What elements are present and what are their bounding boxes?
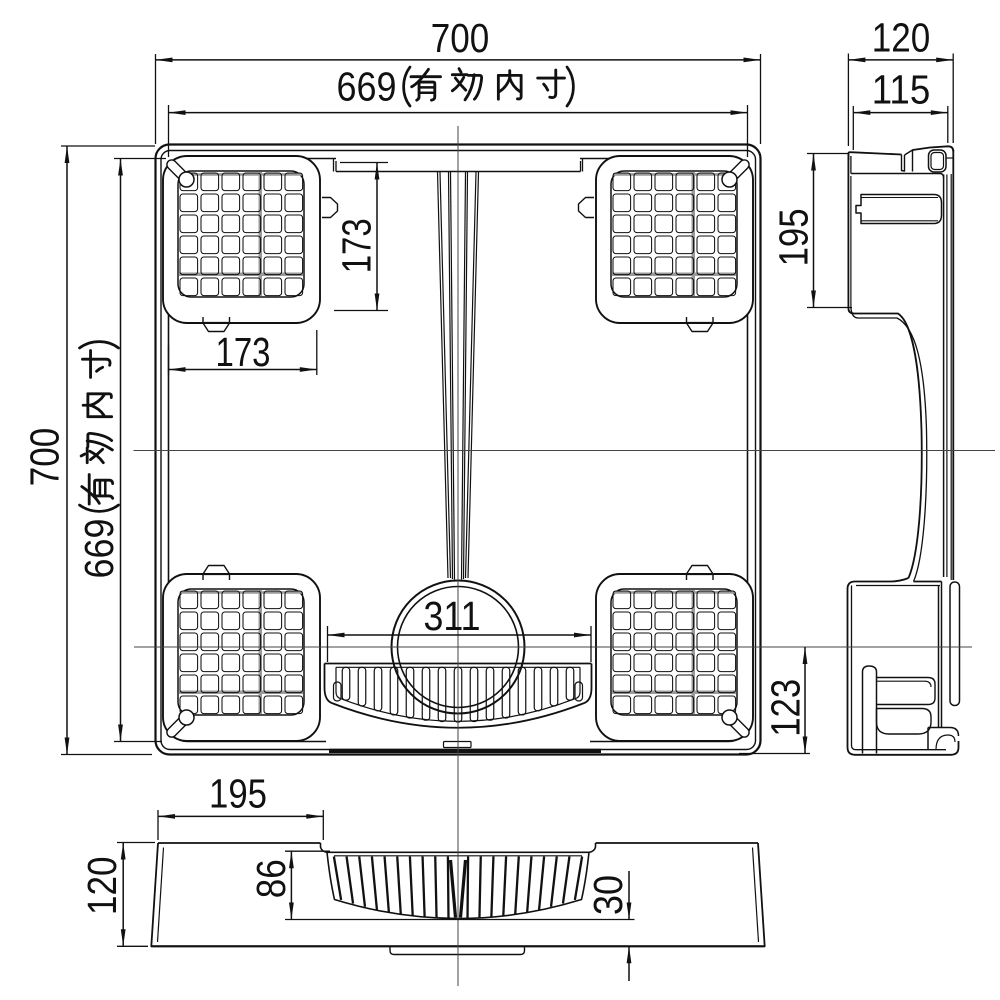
svg-text:120: 120 [872,14,931,60]
svg-text:700: 700 [431,15,490,61]
svg-text:669: 669 [76,519,122,579]
svg-text:86: 86 [248,859,294,898]
svg-text:195: 195 [771,208,817,266]
svg-text:195: 195 [209,771,267,817]
svg-text:115: 115 [872,67,931,113]
svg-text:120: 120 [79,857,125,916]
svg-text:700: 700 [22,428,68,487]
svg-text:30: 30 [585,875,631,915]
svg-text:123: 123 [763,679,809,737]
svg-text:311: 311 [424,593,481,639]
svg-text:173: 173 [216,329,271,375]
svg-text:173: 173 [334,218,380,273]
svg-text:669: 669 [337,64,397,110]
